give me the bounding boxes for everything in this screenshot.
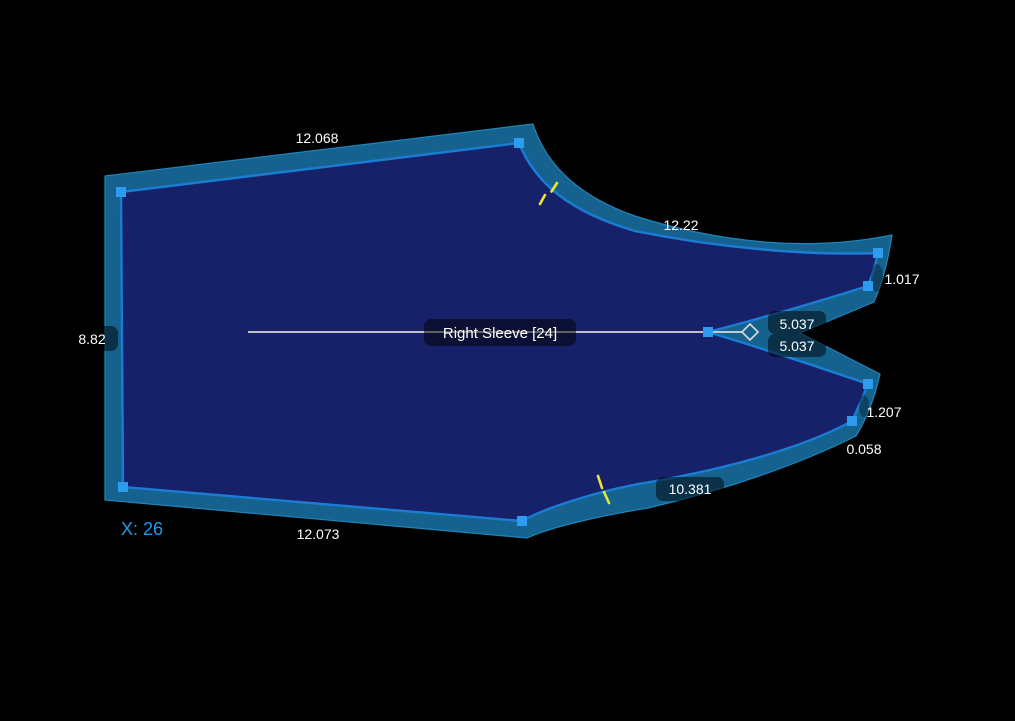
vertex-handle[interactable] (118, 482, 128, 492)
pattern-canvas: Right Sleeve [24] 12.068 12.22 1.017 5.0… (0, 0, 1015, 721)
measurement-top-edge: 12.068 (296, 130, 339, 146)
vertex-handle[interactable] (873, 248, 883, 258)
svg-text:10.381: 10.381 (669, 481, 712, 497)
piece-name-text: Right Sleeve [24] (443, 325, 557, 342)
measurement-dart-upper: 5.037 (768, 311, 826, 334)
svg-text:1.017: 1.017 (884, 271, 919, 287)
vertex-handle[interactable] (847, 416, 857, 426)
x-position-label: X: 26 (121, 519, 163, 539)
measurement-left-edge: 8.82 (66, 326, 118, 351)
vertex-handle[interactable] (517, 516, 527, 526)
vertex-handle[interactable] (863, 281, 873, 291)
measurement-bottom-edge: 12.073 (297, 526, 340, 542)
measurement-tip-gap: 0.058 (846, 441, 881, 457)
measurement-upper-tip-edge: 1.017 (884, 271, 919, 287)
measurement-underarm-curve: 10.381 (656, 477, 724, 501)
vertex-handle[interactable] (514, 138, 524, 148)
svg-text:12.22: 12.22 (663, 217, 698, 233)
svg-text:5.037: 5.037 (779, 316, 814, 332)
svg-text:8.82: 8.82 (78, 331, 105, 347)
measurement-lower-tip-edge: 1.207 (866, 404, 901, 420)
svg-text:12.073: 12.073 (297, 526, 340, 542)
svg-text:12.068: 12.068 (296, 130, 339, 146)
piece-name-label[interactable]: Right Sleeve [24] (424, 319, 576, 346)
vertex-handle[interactable] (116, 187, 126, 197)
svg-text:1.207: 1.207 (866, 404, 901, 420)
vertex-handle[interactable] (863, 379, 873, 389)
measurement-cap-curve: 12.22 (663, 217, 698, 233)
vertex-handle[interactable] (703, 327, 713, 337)
svg-text:0.058: 0.058 (846, 441, 881, 457)
measurement-dart-lower: 5.037 (768, 334, 826, 357)
pattern-workspace: Right Sleeve [24] 12.068 12.22 1.017 5.0… (0, 0, 1015, 721)
svg-text:5.037: 5.037 (779, 338, 814, 354)
